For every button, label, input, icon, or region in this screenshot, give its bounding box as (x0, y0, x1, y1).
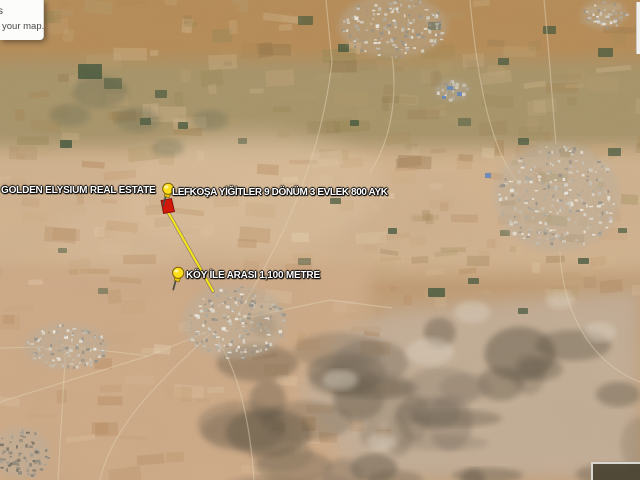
map-tooltip: s your map. (0, 0, 44, 40)
tooltip-text: your map. (2, 21, 44, 32)
attribution-box (591, 462, 640, 480)
satellite-imagery (0, 0, 640, 480)
ui-panel-edge (636, 2, 640, 54)
image-grain (0, 0, 640, 480)
brand-placemark-label[interactable]: GOLDEN ELYSIUM REAL ESTATE (1, 185, 155, 197)
map-canvas[interactable]: GOLDEN ELYSIUM REAL ESTATE LEFKOŞA YİĞİT… (0, 0, 640, 480)
distance-placemark-label[interactable]: KÖY İLE ARASI 1,100 METRE (186, 270, 320, 282)
listing-placemark-label[interactable]: LEFKOŞA YİĞİTLER 9 DÖNÜM 3 EVLEK 800 AYK (172, 187, 388, 199)
tooltip-text-fragment: s (0, 6, 3, 17)
